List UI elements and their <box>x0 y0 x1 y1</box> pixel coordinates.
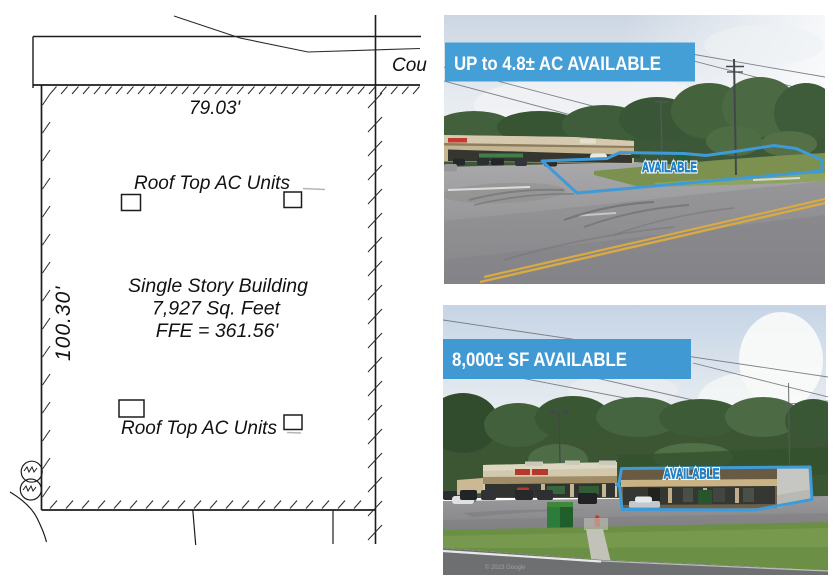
svg-text:AVAILABLE: AVAILABLE <box>642 160 697 176</box>
svg-text:79.03': 79.03' <box>189 98 242 119</box>
svg-text:100.30': 100.30' <box>52 286 75 361</box>
svg-text:FFE = 361.56': FFE = 361.56' <box>156 320 280 342</box>
svg-text:© 2023 Google: © 2023 Google <box>485 564 526 571</box>
svg-text:Roof Top AC Units: Roof Top AC Units <box>121 418 277 439</box>
svg-text:Roof Top AC Units: Roof Top AC Units <box>134 173 290 194</box>
svg-text:Cou: Cou <box>392 55 427 76</box>
svg-text:UP to 4.8± AC AVAILABLE: UP to 4.8± AC AVAILABLE <box>454 53 661 75</box>
svg-text:AVAILABLE: AVAILABLE <box>664 467 720 483</box>
svg-text:7,927 Sq. Feet: 7,927 Sq. Feet <box>152 298 282 320</box>
svg-text:Single Story Building: Single Story Building <box>128 275 308 297</box>
svg-text:8,000± SF AVAILABLE: 8,000± SF AVAILABLE <box>452 349 627 371</box>
